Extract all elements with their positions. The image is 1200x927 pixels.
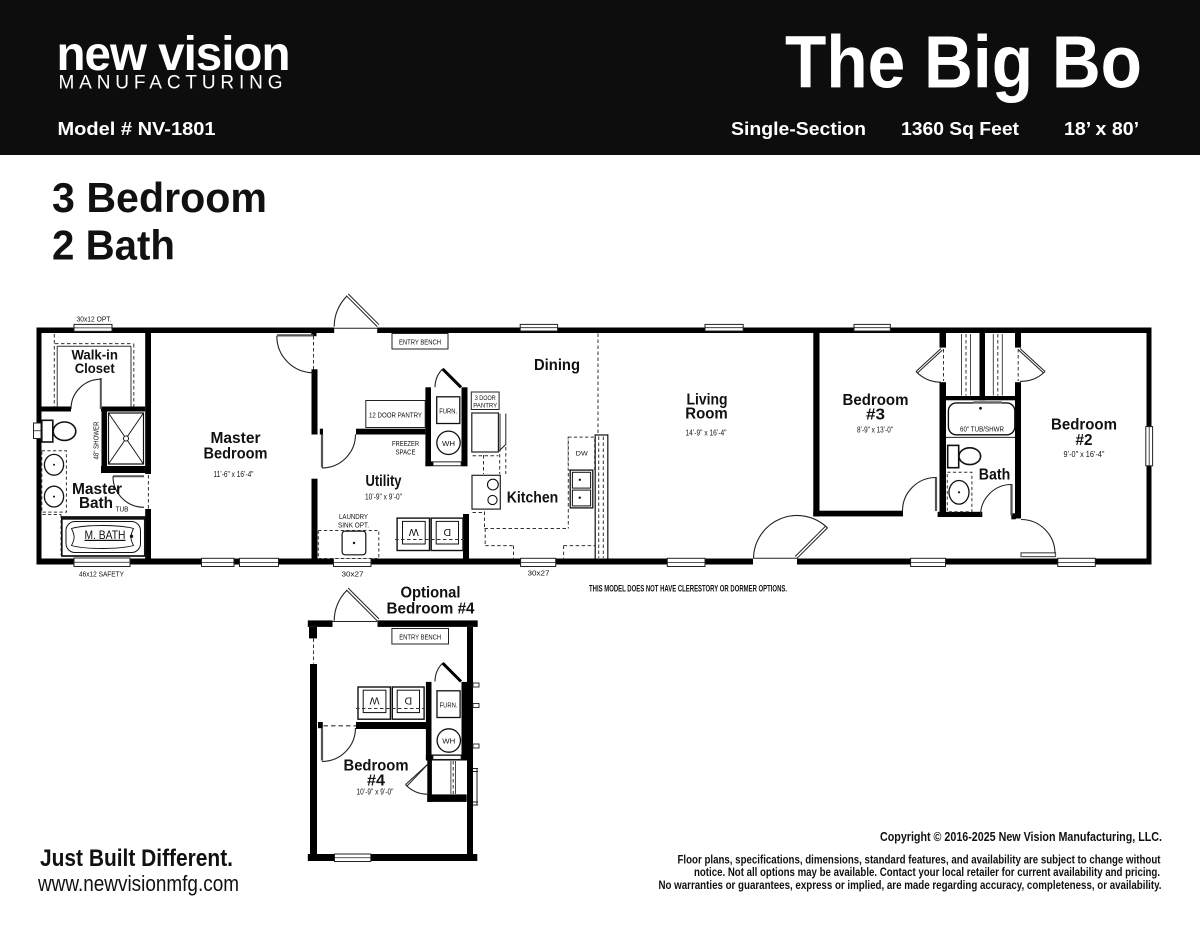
svg-text:11’-6" x 16’-4": 11’-6" x 16’-4" — [214, 470, 254, 479]
svg-text:M. BATH: M. BATH — [85, 528, 126, 542]
svg-text:WH: WH — [442, 739, 455, 746]
svg-text:#3: #3 — [866, 407, 885, 424]
svg-text:Model # NV-1801: Model # NV-1801 — [58, 118, 216, 139]
svg-text:46x12 SAFETY: 46x12 SAFETY — [79, 572, 124, 579]
svg-text:LAUNDRY: LAUNDRY — [339, 514, 368, 521]
svg-text:Kitchen: Kitchen — [507, 490, 559, 507]
svg-text:30x12 OPT.: 30x12 OPT. — [77, 317, 112, 324]
svg-text:Just Built Different.: Just Built Different. — [40, 845, 233, 872]
svg-text:48" SHOWER: 48" SHOWER — [94, 422, 101, 460]
svg-text:W: W — [409, 526, 419, 538]
svg-text:W: W — [369, 695, 379, 707]
svg-text:Utility: Utility — [366, 473, 402, 490]
svg-text:8’-9" x 13’-0": 8’-9" x 13’-0" — [857, 425, 893, 434]
svg-text:Bedroom #4: Bedroom #4 — [387, 601, 475, 618]
svg-text:30x27: 30x27 — [342, 572, 364, 579]
svg-text:D: D — [404, 695, 412, 707]
svg-text:Bath: Bath — [979, 467, 1011, 484]
svg-text:Bath: Bath — [79, 495, 113, 512]
svg-text:THIS MODEL DOES NOT HAVE CLERE: THIS MODEL DOES NOT HAVE CLERESTORY OR D… — [589, 584, 787, 594]
svg-text:1360 Sq Feet: 1360 Sq Feet — [901, 118, 1019, 139]
svg-text:30x27: 30x27 — [528, 571, 550, 578]
svg-text:FURN.: FURN. — [440, 703, 458, 710]
svg-text:Closet: Closet — [75, 361, 115, 376]
svg-text:MANUFACTURING: MANUFACTURING — [59, 73, 287, 94]
svg-text:Bedroom: Bedroom — [204, 446, 268, 463]
svg-text:FURN.: FURN. — [439, 409, 457, 416]
svg-text:The Big Bo: The Big Bo — [785, 21, 1142, 104]
svg-text:TUB: TUB — [116, 505, 129, 514]
svg-text:DW: DW — [576, 451, 589, 458]
svg-text:PANTRY: PANTRY — [473, 402, 498, 409]
svg-text:Optional: Optional — [401, 585, 461, 602]
svg-text:FREEZER: FREEZER — [392, 441, 419, 448]
svg-text:Single-Section: Single-Section — [731, 118, 866, 139]
svg-text:Copyright © 2016-2025 New Visi: Copyright © 2016-2025 New Vision Manufac… — [880, 829, 1162, 844]
svg-text:WH: WH — [442, 441, 455, 448]
svg-text:3 Bedroom: 3 Bedroom — [52, 174, 267, 221]
svg-text:9’-0" x 16’-4": 9’-0" x 16’-4" — [1064, 450, 1105, 459]
svg-text:#2: #2 — [1076, 432, 1093, 449]
svg-text:SPACE: SPACE — [396, 450, 416, 457]
svg-text:No warranties or guarantees, e: No warranties or guarantees, express or … — [659, 878, 1162, 892]
svg-text:10’-9" x 9’-0": 10’-9" x 9’-0" — [365, 493, 402, 502]
svg-text:www.newvisionmfg.com: www.newvisionmfg.com — [37, 871, 239, 896]
svg-text:ENTRY BENCH: ENTRY BENCH — [399, 340, 441, 347]
svg-text:Room: Room — [685, 406, 728, 423]
svg-text:notice. Not all options may be: notice. Not all options may be available… — [694, 865, 1160, 879]
svg-text:SINK OPT.: SINK OPT. — [338, 523, 369, 530]
svg-text:D: D — [443, 526, 451, 538]
svg-text:ENTRY BENCH: ENTRY BENCH — [399, 635, 441, 642]
svg-text:14’-9" x 16’-4": 14’-9" x 16’-4" — [686, 429, 727, 438]
svg-text:18’ x 80’: 18’ x 80’ — [1064, 118, 1139, 139]
svg-text:2 Bath: 2 Bath — [52, 222, 175, 269]
svg-text:12 DOOR PANTRY: 12 DOOR PANTRY — [369, 411, 422, 420]
svg-text:3 DOOR: 3 DOOR — [475, 395, 496, 402]
svg-text:10’-9" x 9’-0": 10’-9" x 9’-0" — [357, 788, 394, 797]
svg-text:60" TUB/SHWR: 60" TUB/SHWR — [960, 427, 1004, 434]
svg-text:Dining: Dining — [534, 357, 580, 374]
